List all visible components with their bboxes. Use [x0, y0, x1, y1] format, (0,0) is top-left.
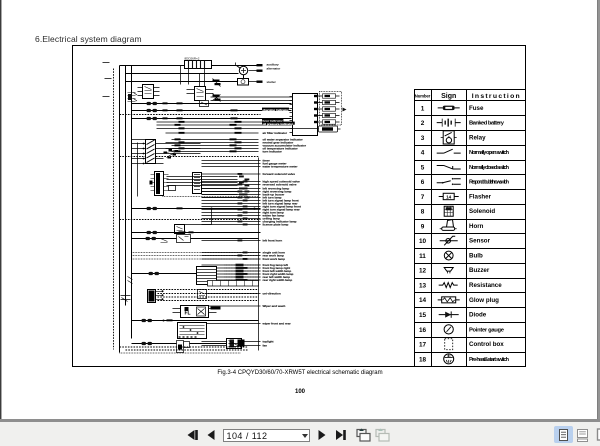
svg-text:Solenoid: Solenoid — [469, 208, 495, 215]
svg-text:charging indicator: charging indicator — [263, 108, 290, 112]
svg-text:air filter indicator: air filter indicator — [263, 131, 288, 135]
svg-text:Pointer gauge: Pointer gauge — [469, 327, 505, 333]
svg-text:Flasher: Flasher — [469, 193, 492, 200]
svg-text:Normally closed switch: Normally closed switch — [469, 165, 510, 171]
svg-text:alternator: alternator — [267, 67, 282, 71]
svg-text:rear right width lamp: rear right width lamp — [263, 278, 293, 282]
svg-text:Resistance: Resistance — [469, 282, 502, 289]
svg-text:oil pressure indicator: oil pressure indicator — [263, 122, 294, 126]
svg-text:Number: Number — [415, 94, 431, 99]
svg-text:18: 18 — [419, 356, 427, 363]
svg-text:16: 16 — [419, 327, 427, 334]
svg-text:Fuse: Fuse — [469, 105, 484, 112]
svg-text:14: 14 — [446, 194, 452, 199]
svg-text:Sensor: Sensor — [469, 238, 491, 245]
svg-text:3: 3 — [421, 135, 425, 142]
svg-text:8DD26R×2: 8DD26R×2 — [185, 57, 200, 61]
svg-text:11: 11 — [419, 253, 426, 260]
svg-text:uni-direction: uni-direction — [263, 292, 281, 296]
svg-text:ON: ON — [447, 355, 451, 358]
svg-text:Glow plug: Glow plug — [469, 297, 499, 304]
svg-text:12: 12 — [419, 268, 427, 275]
svg-text:9: 9 — [421, 223, 425, 230]
svg-text:Diode: Diode — [469, 312, 487, 319]
svg-text:15: 15 — [419, 312, 427, 319]
svg-text:starter: starter — [267, 80, 277, 84]
svg-text:Horn: Horn — [469, 223, 484, 230]
svg-text:Pre-heat&start switch: Pre-heat&start switch — [469, 357, 510, 363]
svg-text:turn indicator: turn indicator — [263, 150, 283, 154]
svg-text:Sign: Sign — [441, 93, 456, 100]
svg-text:forward solenoid valve: forward solenoid valve — [263, 172, 296, 176]
svg-text:14: 14 — [419, 297, 427, 304]
svg-text:Normally open switch: Normally open switch — [469, 150, 510, 156]
svg-text:17: 17 — [419, 342, 427, 349]
svg-text:Buzzer: Buzzer — [469, 267, 490, 274]
svg-text:1: 1 — [421, 105, 425, 112]
svg-text:FL: FL — [185, 311, 191, 317]
svg-text:10: 10 — [419, 238, 427, 245]
svg-text:5: 5 — [421, 164, 425, 171]
svg-text:2: 2 — [421, 120, 425, 127]
svg-text:8: 8 — [421, 209, 425, 216]
svg-text:7: 7 — [421, 194, 425, 201]
svg-text:water temperature meter: water temperature meter — [262, 165, 299, 169]
svg-text:wiper front and rear: wiper front and rear — [262, 322, 292, 326]
svg-text:13: 13 — [419, 283, 427, 290]
svg-text:6: 6 — [421, 179, 425, 186]
svg-text:Respond double throw switch: Respond double throw switch — [469, 180, 510, 186]
svg-text:Bulb: Bulb — [469, 252, 483, 259]
svg-text:Wiper and wash: Wiper and wash — [263, 304, 286, 308]
svg-text:Control box: Control box — [469, 341, 504, 348]
svg-text:left front horn: left front horn — [263, 239, 283, 243]
svg-text:Instruction: Instruction — [472, 93, 520, 100]
svg-text:front work lamp: front work lamp — [263, 257, 286, 261]
svg-text:license plate lamp: license plate lamp — [263, 223, 289, 227]
svg-text:4: 4 — [421, 150, 425, 157]
svg-text:Relay: Relay — [469, 134, 486, 141]
svg-text:Banked battery: Banked battery — [469, 121, 505, 127]
svg-text:fan: fan — [263, 344, 268, 348]
